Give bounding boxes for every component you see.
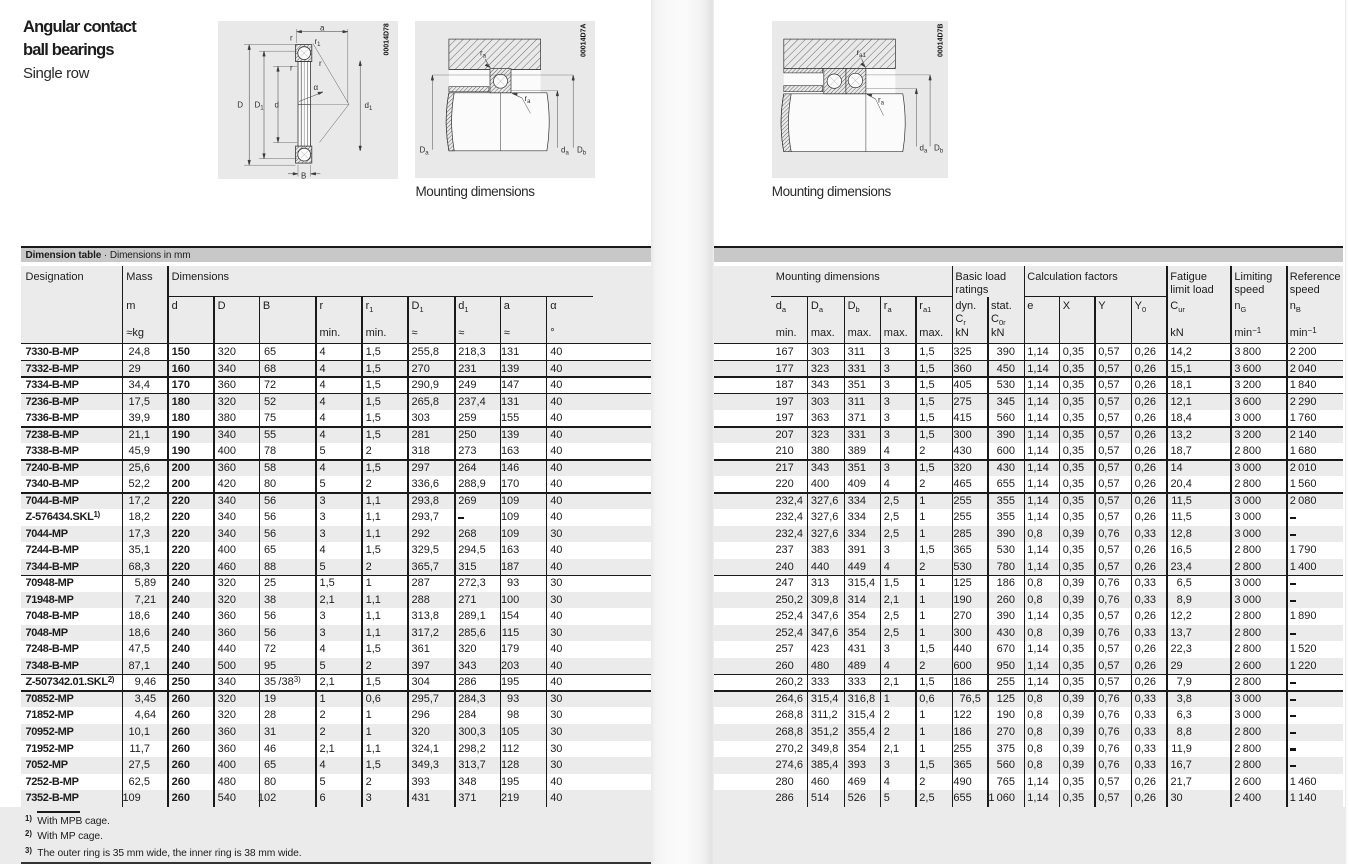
- svg-text:d: d: [275, 100, 279, 109]
- svg-text:00014D7B: 00014D7B: [938, 24, 945, 57]
- svg-text:a: a: [320, 23, 325, 32]
- svg-text:D: D: [237, 100, 243, 109]
- svg-text:B: B: [301, 172, 306, 180]
- svg-text:r: r: [290, 34, 293, 43]
- svg-text:r: r: [290, 64, 293, 73]
- svg-text:α: α: [314, 83, 319, 92]
- svg-text:r: r: [319, 59, 322, 68]
- svg-text:00014D7A: 00014D7A: [581, 24, 588, 57]
- svg-text:00014D78: 00014D78: [384, 23, 391, 55]
